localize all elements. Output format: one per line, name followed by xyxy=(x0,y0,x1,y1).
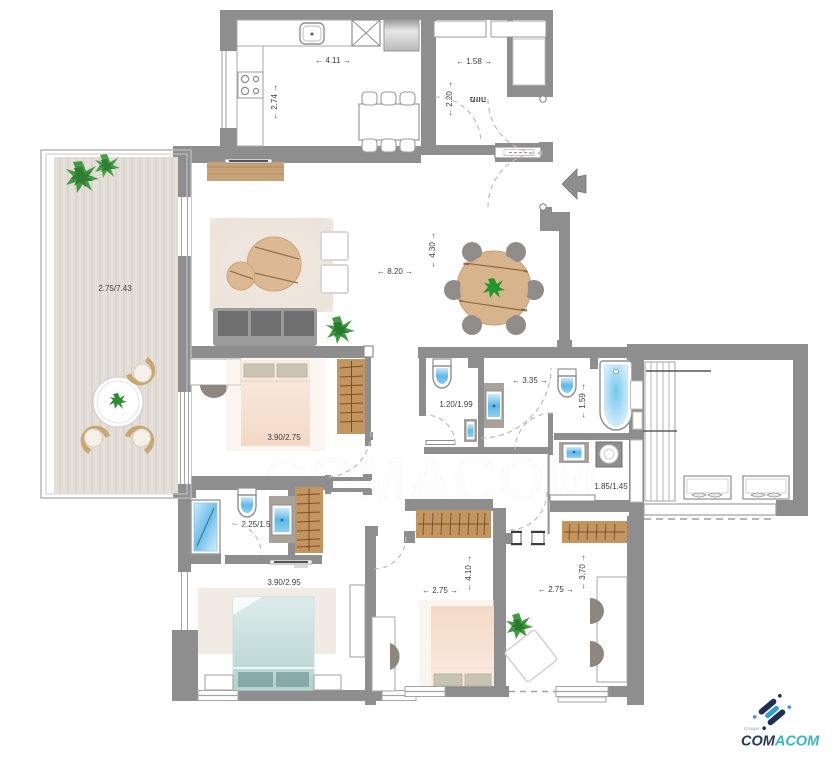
svg-text:3.90/2.95: 3.90/2.95 xyxy=(267,578,301,587)
svg-text:2.75/7.43: 2.75/7.43 xyxy=(98,284,132,293)
svg-text:3.90/2.75: 3.90/2.75 xyxy=(267,433,301,442)
svg-text:← 4.11 →: ← 4.11 → xyxy=(315,56,350,65)
svg-text:מזוה: מזוה xyxy=(470,95,487,104)
svg-text:← 2.74 →: ← 2.74 → xyxy=(270,84,279,120)
svg-text:← 1.58 →: ← 1.58 → xyxy=(456,57,492,66)
svg-text:← 8.20 →: ← 8.20 → xyxy=(377,267,413,276)
svg-text:Groupe: Groupe xyxy=(744,726,760,731)
svg-text:← 4.30 →: ← 4.30 → xyxy=(428,232,437,268)
svg-text:← 3.70 →: ← 3.70 → xyxy=(578,554,587,590)
svg-text:COMACOM: COMACOM xyxy=(741,734,820,750)
svg-text:← 2.75 →: ← 2.75 → xyxy=(538,585,574,594)
svg-text:2.25/1.5: 2.25/1.5 xyxy=(242,520,271,529)
svg-text:← 2.75 →: ← 2.75 → xyxy=(422,586,458,595)
svg-text:1.20/1.99: 1.20/1.99 xyxy=(439,400,473,409)
svg-text:← 3.35 →: ← 3.35 → xyxy=(512,376,548,385)
svg-text:← 4.10 →: ← 4.10 → xyxy=(464,555,473,591)
svg-text:← 1.59 →: ← 1.59 → xyxy=(578,383,587,419)
svg-text:1.85/1.45: 1.85/1.45 xyxy=(594,482,628,491)
